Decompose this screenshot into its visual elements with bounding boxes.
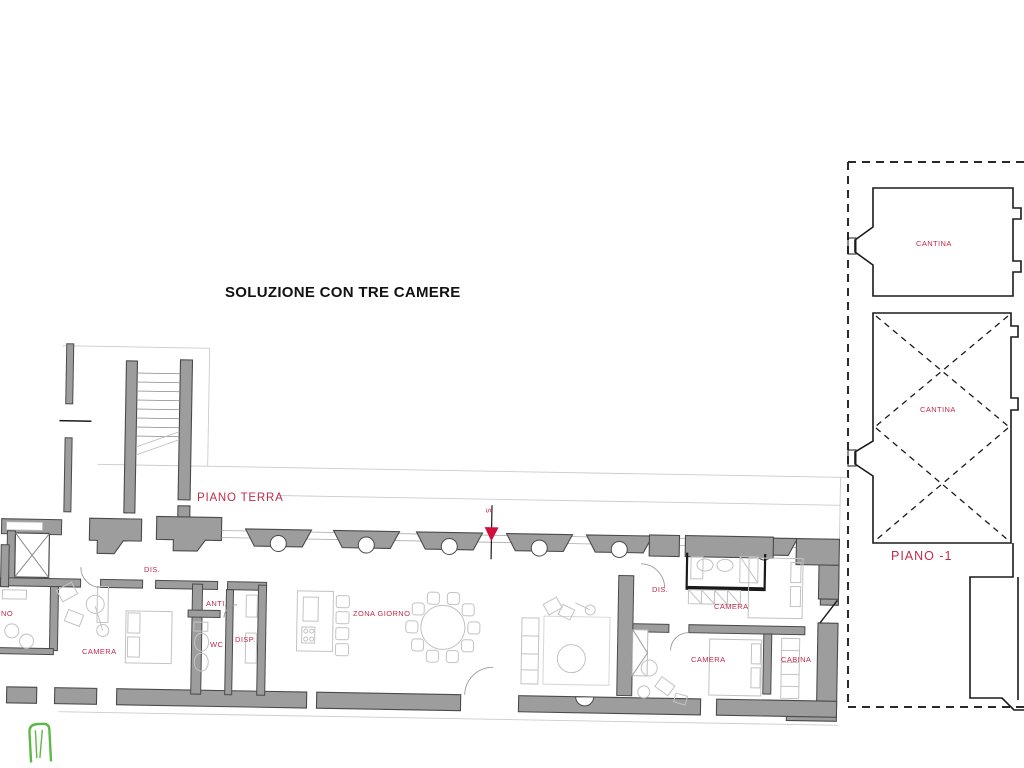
floor-label-piano-terra: PIANO TERRA xyxy=(197,493,284,505)
room-label-bagno-partial: NO xyxy=(1,610,13,618)
floor-plan-drawing xyxy=(0,0,1024,768)
floor-plan-page: SOLUZIONE CON TRE CAMERE PIANO TERRA PIA… xyxy=(0,0,1024,768)
room-label-wc: WC xyxy=(210,641,223,649)
room-label-cabina: CABINA xyxy=(781,656,811,664)
floor-label-piano-minus-1: PIANO -1 xyxy=(891,550,953,563)
basement-partial-room xyxy=(970,543,1024,710)
room-label-disp: DISP. xyxy=(235,636,256,644)
room-label-cantina-top: CANTINA xyxy=(916,240,952,248)
right-wall xyxy=(786,564,839,721)
section-marker-icon xyxy=(484,505,499,559)
room-label-cantina-bottom: CANTINA xyxy=(920,406,956,414)
cantina-bottom-room xyxy=(855,313,1018,543)
ground-floor-plan xyxy=(0,343,850,726)
room-label-dis-left: DIS. xyxy=(144,566,160,574)
section-marker-letter: S xyxy=(484,508,491,513)
furniture xyxy=(1,544,803,707)
interior-walls xyxy=(0,545,806,705)
logo-mark-icon xyxy=(29,724,51,763)
top-wall xyxy=(0,514,839,606)
staircase xyxy=(123,359,192,536)
left-thin-wall xyxy=(58,344,93,513)
room-label-anti: ANTI. xyxy=(206,600,227,608)
room-label-camera-top-right: CAMERA xyxy=(714,603,749,611)
shaft-x-box xyxy=(15,533,50,578)
room-label-dis-right: DIS. xyxy=(652,586,668,594)
room-label-camera-left: CAMERA xyxy=(82,648,117,656)
door-arcs xyxy=(79,554,690,699)
room-label-camera-bottom-right: CAMERA xyxy=(691,656,726,664)
page-title: SOLUZIONE CON TRE CAMERE xyxy=(225,284,461,301)
room-label-zona-giorno: ZONA GIORNO xyxy=(353,610,410,618)
